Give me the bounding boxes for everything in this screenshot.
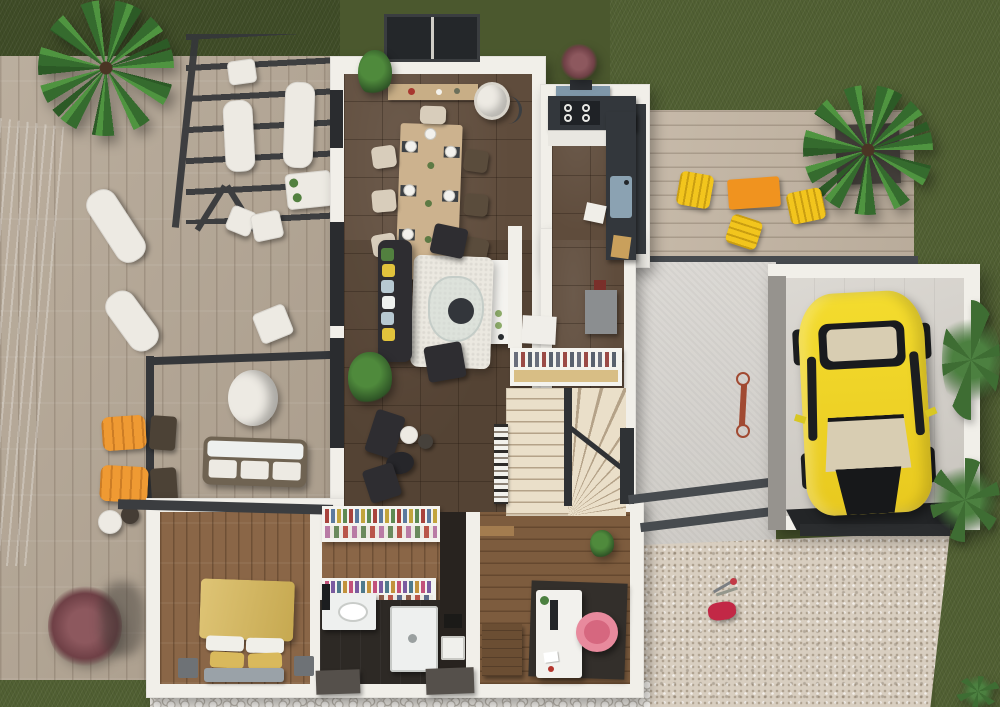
bed-pillow-yellow: [210, 651, 245, 669]
wall-tv: [322, 584, 330, 610]
sideboard: [388, 84, 478, 100]
hanging-clothes: [514, 352, 618, 367]
sofa-cushion: [208, 459, 237, 478]
sofa-cushion: [240, 461, 269, 480]
indoor-plant: [590, 530, 614, 558]
shower-drain: [408, 634, 417, 643]
glass-wall-panel: [330, 222, 344, 326]
bicycle: [734, 370, 754, 446]
pillow: [381, 312, 394, 325]
bed-pillow: [206, 635, 245, 651]
white-box: [583, 202, 606, 224]
hanging-clothes: [325, 581, 433, 593]
centerpiece: [425, 200, 432, 207]
sink-basin: [338, 602, 368, 622]
cutting-board: [611, 235, 632, 259]
faucet: [498, 334, 504, 340]
side-table: [400, 426, 418, 444]
bookshelf: [494, 424, 508, 504]
burner: [564, 114, 572, 122]
desk: [536, 590, 582, 678]
decor-item: [436, 89, 442, 95]
plate: [424, 128, 436, 140]
bike-wheel: [736, 424, 750, 438]
skylight: [384, 14, 480, 62]
patio-table-orange: [727, 176, 781, 210]
faucet: [624, 180, 629, 185]
sun-lounger-orange: [101, 415, 147, 452]
car-windshield: [823, 414, 912, 472]
stair-flight-straight: [506, 388, 568, 516]
door-mat: [521, 315, 556, 345]
stair-rail: [564, 388, 572, 506]
outdoor-sofa: [284, 170, 334, 211]
step-block: [316, 669, 361, 695]
pillow: [382, 296, 395, 309]
car-hood: [835, 466, 903, 515]
palm-tree: [38, 0, 174, 136]
patio-chair-yellow: [675, 170, 714, 209]
step-block: [426, 667, 475, 695]
closet-shelf: [514, 370, 618, 382]
centerpiece: [427, 162, 434, 169]
skylight-divider: [431, 17, 434, 59]
wall-shelf: [480, 526, 514, 536]
sofa-cushion: [207, 440, 303, 459]
monitor: [550, 600, 558, 630]
yellow-sports-car: [792, 289, 937, 518]
garden-plant: [930, 458, 1000, 542]
sun-lounger: [283, 82, 316, 169]
partition-wall: [466, 512, 480, 684]
floor-plan-render: [0, 0, 1000, 707]
chair-seat: [584, 620, 610, 644]
deck-chair: [149, 415, 177, 451]
green-pillow: [292, 193, 302, 203]
armchair: [423, 341, 467, 383]
washer: [441, 636, 465, 660]
side-table-dark: [418, 434, 433, 449]
glass-wall-panel: [330, 338, 344, 448]
garage-apron: [800, 524, 950, 536]
glass-wall-panel: [330, 90, 343, 148]
bed-duvet: [199, 578, 295, 641]
bed-pillow: [246, 638, 284, 654]
front-door: [620, 428, 634, 504]
hanging-chair-stand: [494, 96, 522, 124]
dining-chair: [371, 144, 398, 169]
coat-closet: [510, 348, 622, 386]
burner: [564, 104, 572, 112]
papers: [543, 651, 558, 663]
nightstand: [294, 656, 314, 676]
office-chair-pink: [576, 612, 618, 652]
decor-item: [495, 310, 502, 317]
wine-rack: [444, 614, 462, 628]
sofa-cushion: [272, 462, 301, 481]
wood-bench: [482, 624, 522, 676]
bed-pillow-yellow: [248, 652, 283, 669]
clothes-rack: [322, 506, 440, 542]
burner: [582, 114, 590, 122]
dining-chair: [420, 106, 447, 125]
partition-wall: [508, 226, 522, 348]
coffee-table: [428, 276, 484, 342]
sun-lounger: [222, 99, 256, 172]
kitchen-sink: [610, 176, 632, 218]
cooktop: [560, 101, 600, 125]
desk-lamp: [548, 666, 554, 672]
nightstand: [178, 658, 198, 678]
sun-lounger-orange: [99, 465, 149, 503]
palm-tree: [803, 85, 933, 215]
side-table: [98, 510, 122, 534]
pillow: [381, 280, 394, 293]
garage-side-wall: [768, 276, 786, 530]
scooter-wheel: [730, 578, 737, 585]
bike-frame: [739, 384, 747, 426]
staircase: [506, 388, 626, 516]
patio-armchair: [226, 58, 257, 86]
coffee-machine: [594, 280, 606, 290]
pillow: [382, 328, 395, 341]
pillow: [381, 248, 394, 261]
hood-cap: [570, 80, 592, 90]
decor-item: [408, 88, 415, 95]
car-rear-glass: [826, 326, 898, 362]
indoor-plant: [358, 50, 392, 96]
decor-item: [454, 88, 460, 94]
car-side-window: [807, 357, 817, 441]
appliance-cart: [585, 290, 617, 334]
flower-bush: [560, 44, 598, 80]
bed-bench: [204, 668, 284, 682]
garden-plant: [942, 300, 1000, 420]
burner: [582, 104, 590, 112]
kids-scooter: [710, 574, 740, 600]
garden-plant: [956, 676, 1000, 707]
shower: [390, 606, 438, 672]
decor-item: [495, 322, 502, 329]
pillow: [382, 264, 395, 277]
shoe-row: [325, 526, 437, 538]
round-table: [228, 370, 278, 426]
dining-chair: [371, 189, 397, 213]
dining-chair: [463, 193, 489, 217]
outdoor-sofa: [202, 436, 308, 488]
indoor-plant: [348, 352, 392, 404]
hanging-clothes: [325, 509, 437, 523]
table-tray: [448, 298, 474, 324]
desk-plant: [540, 596, 549, 605]
bush-shadow: [100, 582, 144, 656]
sofa: [378, 240, 412, 362]
green-pillow: [289, 178, 299, 188]
dining-chair: [463, 148, 490, 173]
